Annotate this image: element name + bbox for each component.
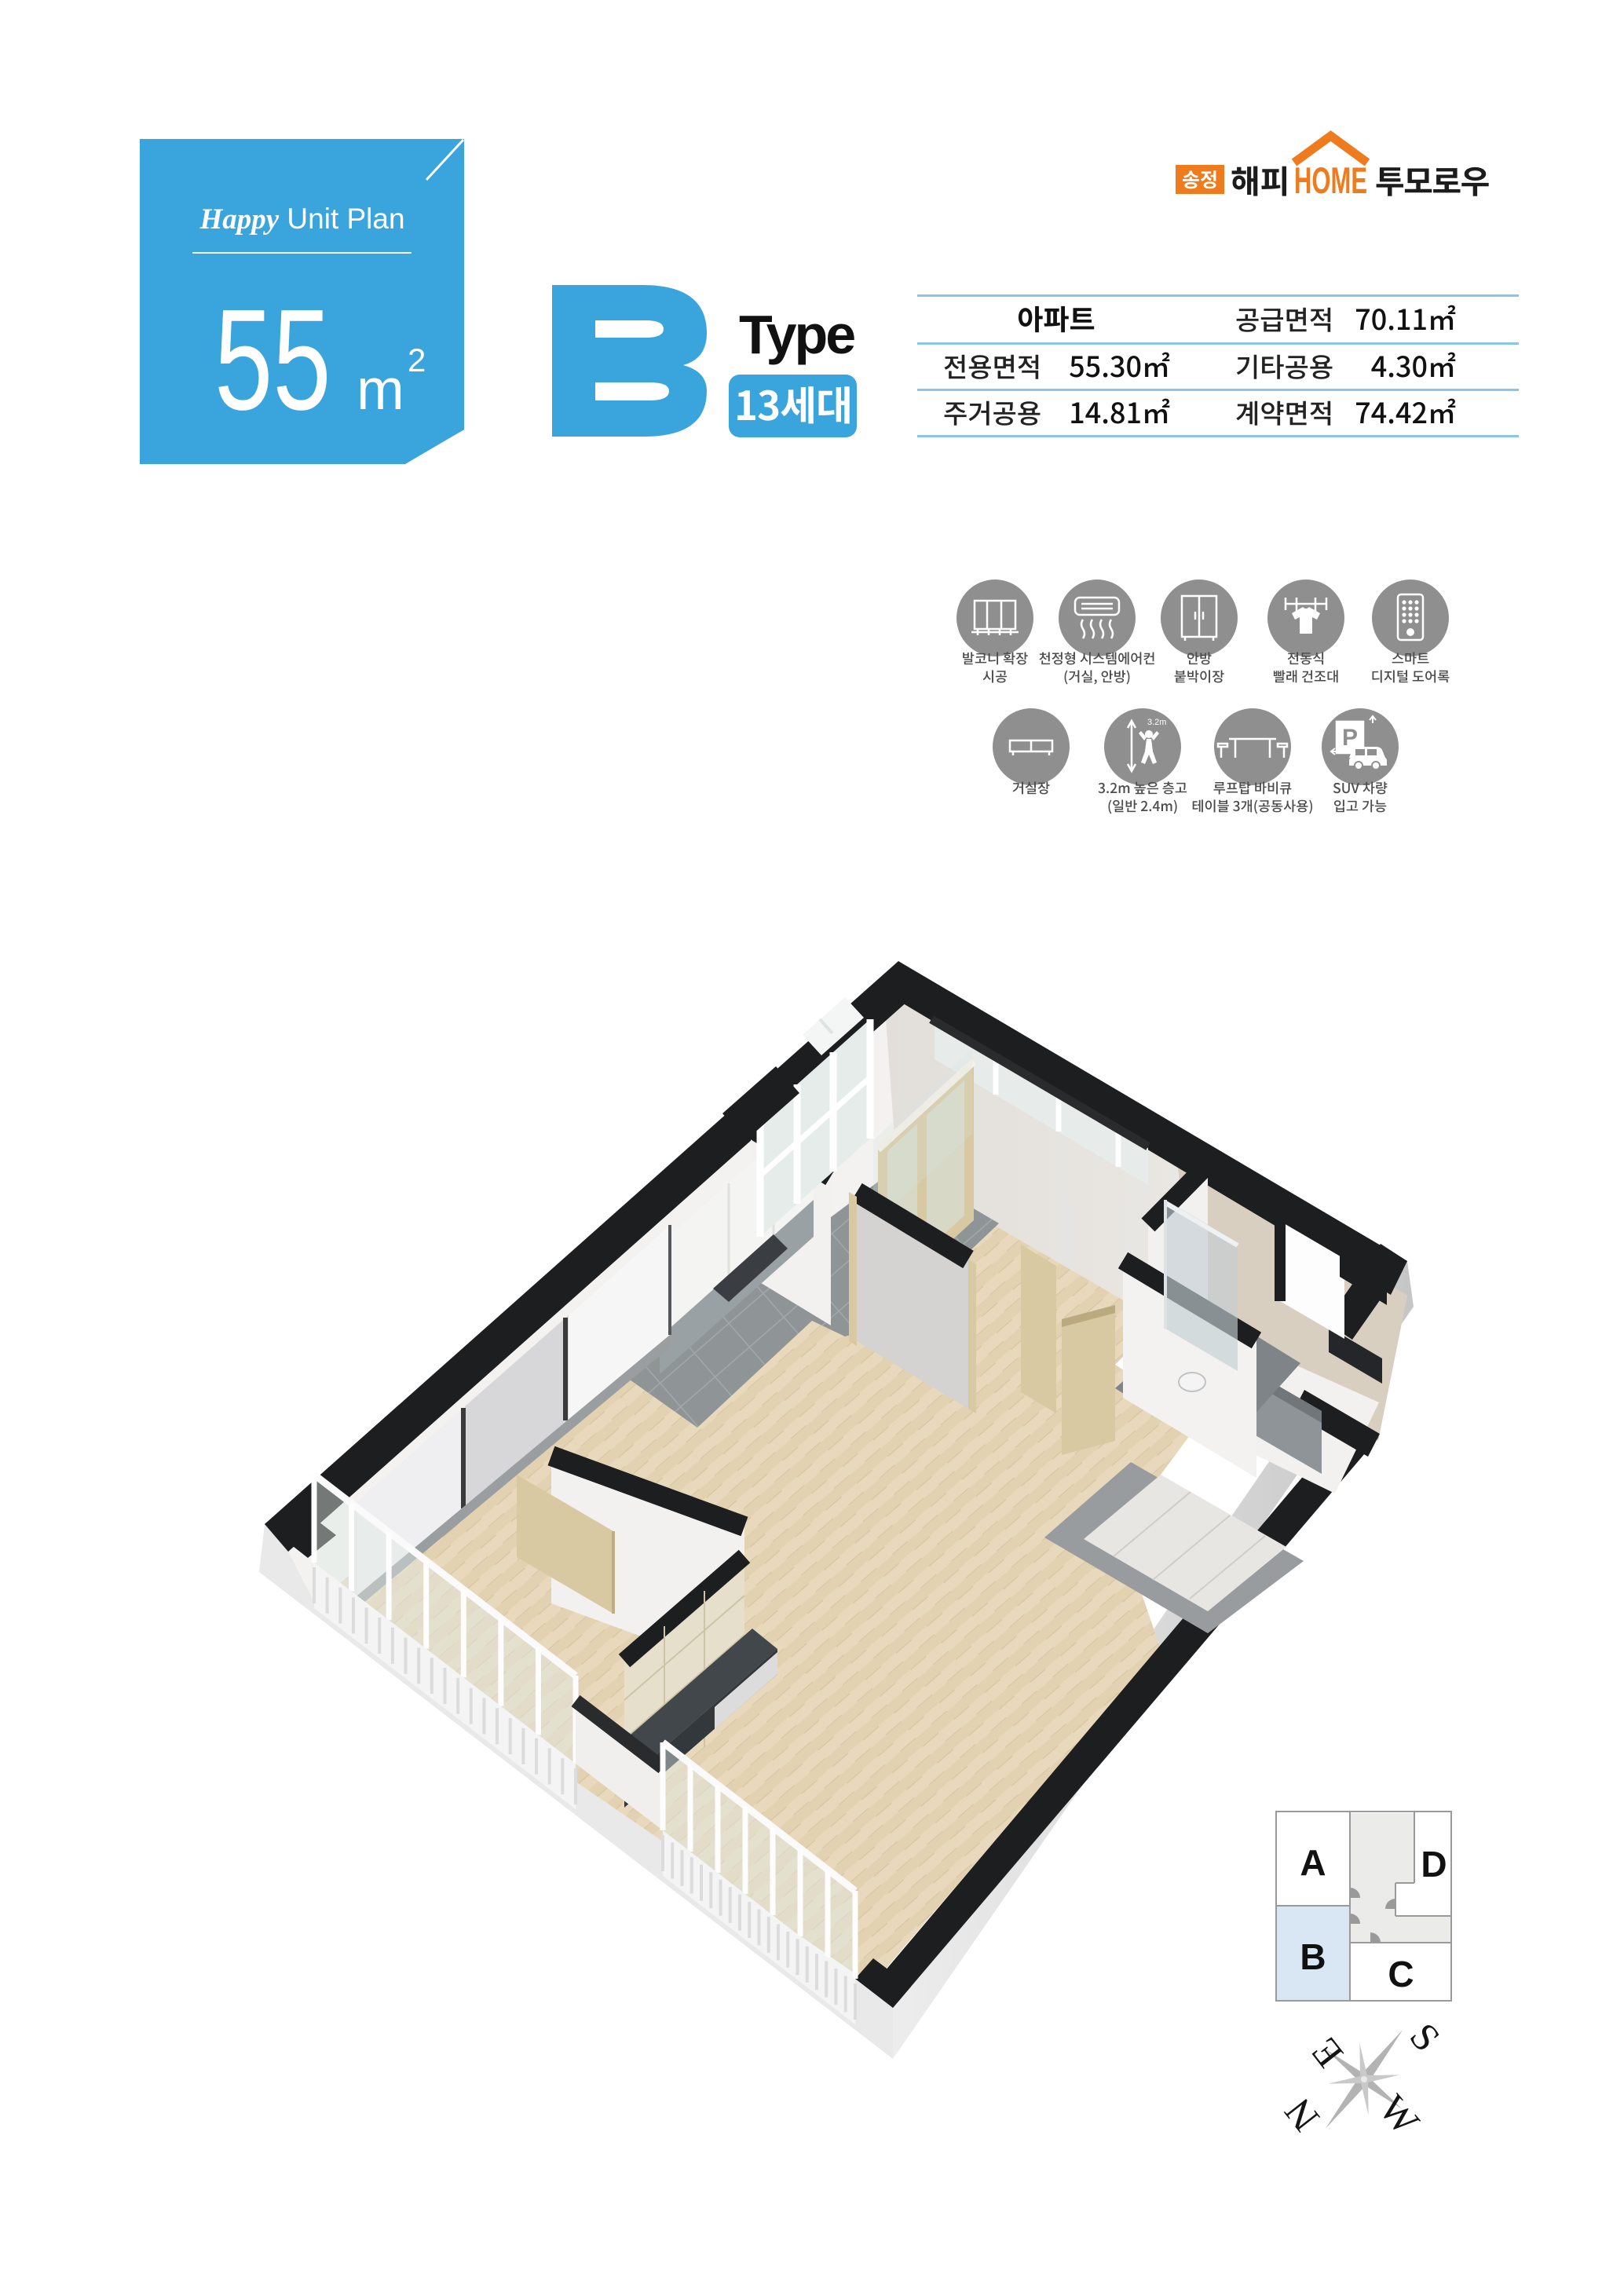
svg-text:W: W <box>1370 2086 1428 2144</box>
svg-text:A: A <box>1300 1842 1326 1883</box>
svg-text:S: S <box>1402 2014 1450 2059</box>
svg-text:C: C <box>1388 1954 1414 1994</box>
svg-text:B: B <box>1300 1936 1326 1977</box>
svg-text:E: E <box>1302 2030 1352 2076</box>
svg-text:N: N <box>1275 2090 1327 2140</box>
svg-text:D: D <box>1421 1844 1447 1885</box>
